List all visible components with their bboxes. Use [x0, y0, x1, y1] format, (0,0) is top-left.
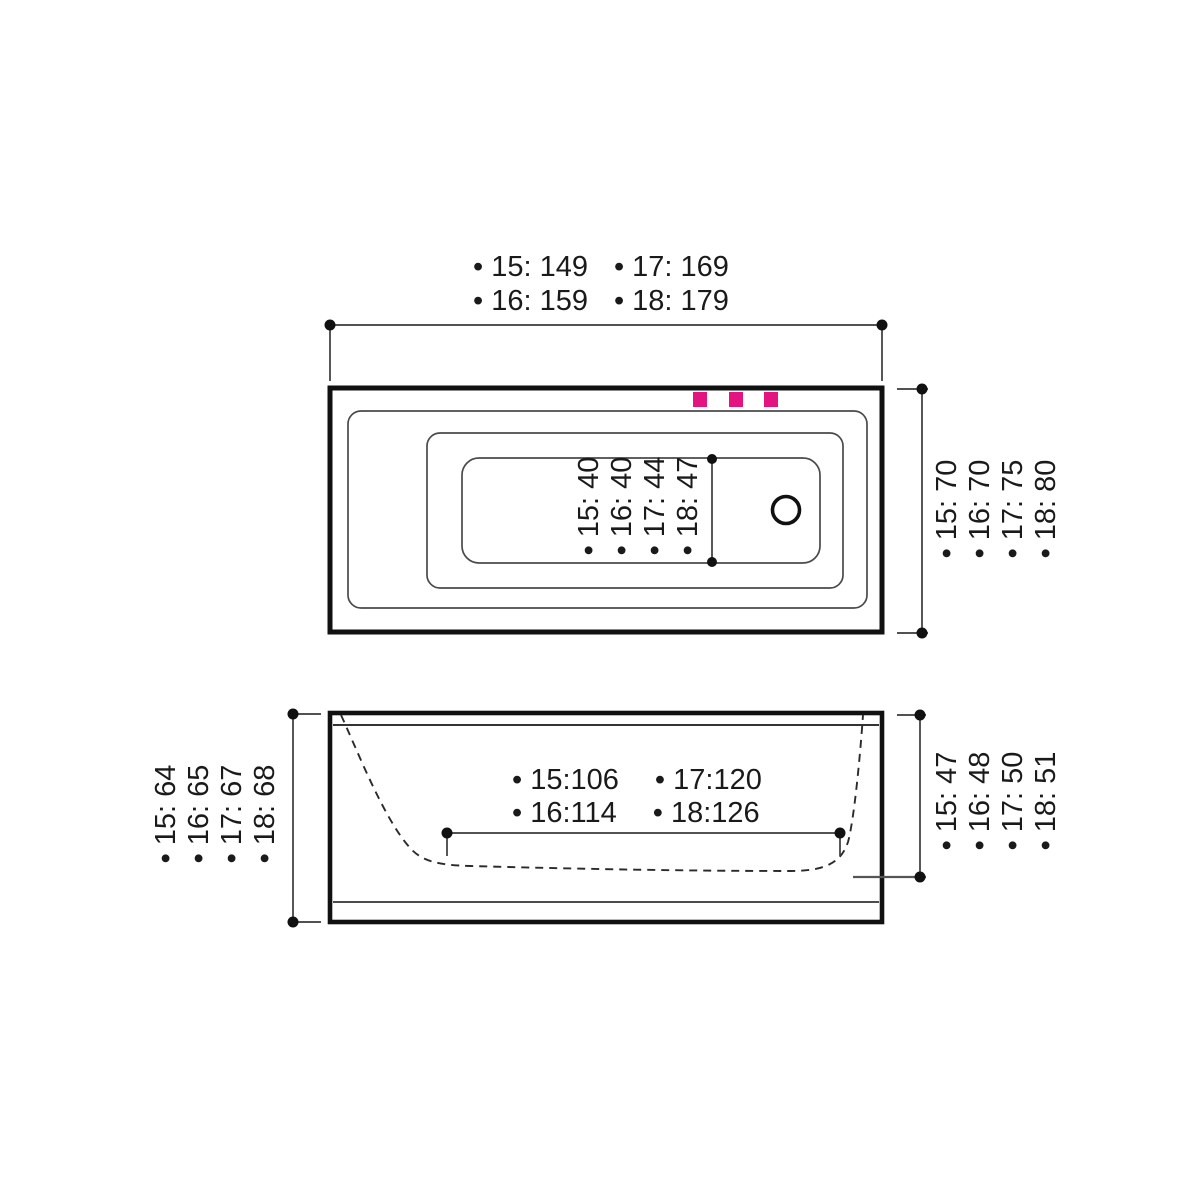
dim-label: • 17: 67	[216, 765, 249, 864]
jet-marker-icon	[729, 392, 743, 407]
dim-dot	[707, 557, 717, 567]
dim-dot	[835, 828, 846, 839]
dim-label: • 15:106	[512, 764, 619, 797]
dim-label: • 17: 50	[997, 752, 1030, 851]
plan-floor-width-labels: • 15: 40 • 16: 40 • 17: 44 • 18: 47	[573, 457, 705, 556]
dim-label: • 18: 179	[614, 284, 729, 318]
dim-label: • 15: 40	[573, 457, 606, 556]
dim-label: • 17: 75	[997, 460, 1030, 559]
dim-label: • 16: 159	[473, 284, 588, 318]
dim-dot	[915, 872, 926, 883]
dim-dot	[917, 384, 928, 395]
side-depth-labels: • 15: 47 • 16: 48 • 17: 50 • 18: 51	[931, 752, 1063, 851]
jet-marker-icon	[693, 392, 707, 407]
dim-label: • 16: 40	[606, 457, 639, 556]
dim-dot	[917, 628, 928, 639]
dim-label: • 17:120	[655, 764, 762, 797]
dim-label: • 16:114	[512, 797, 617, 830]
jet-markers	[693, 392, 778, 407]
bathtub-dimension-drawing: • 15: 149 • 17: 169 • 16: 159 • 18: 179 …	[0, 0, 1200, 1200]
dim-dot	[877, 320, 888, 331]
side-floor-length-labels: • 15:106 • 17:120 • 16:114 • 18:126	[512, 764, 762, 830]
jet-marker-icon	[764, 392, 778, 407]
dim-label: • 15: 149	[473, 250, 588, 284]
dim-label: • 18: 51	[1030, 752, 1063, 851]
dim-label: • 15: 64	[150, 765, 183, 864]
dim-label: • 17: 44	[639, 457, 672, 556]
dim-dot	[325, 320, 336, 331]
side-depth-dimension-line	[853, 715, 926, 877]
dim-label: • 16: 70	[964, 460, 997, 559]
dim-label: • 18:126	[653, 797, 760, 830]
dim-label: • 18: 47	[672, 457, 705, 556]
dim-dot	[288, 709, 299, 720]
dim-label: • 18: 80	[1030, 460, 1063, 559]
dim-label: • 18: 68	[249, 765, 282, 864]
dim-label: • 15: 70	[931, 460, 964, 559]
drain-circle	[773, 497, 800, 524]
dim-dot	[288, 917, 299, 928]
drawing-layer	[0, 0, 1200, 1200]
dim-label: • 16: 65	[183, 765, 216, 864]
plan-length-labels: • 15: 149 • 17: 169 • 16: 159 • 18: 179	[473, 250, 729, 318]
dim-label: • 17: 169	[614, 250, 729, 284]
side-height-dimension-line	[293, 714, 321, 922]
plan-width-dimension-line	[897, 389, 928, 633]
plan-width-labels: • 15: 70 • 16: 70 • 17: 75 • 18: 80	[931, 460, 1063, 559]
dim-dot	[442, 828, 453, 839]
side-height-labels: • 15: 64 • 16: 65 • 17: 67 • 18: 68	[150, 765, 282, 864]
side-floor-length-dimension-line	[447, 833, 840, 856]
plan-length-dimension-line	[330, 325, 882, 381]
dim-label: • 15: 47	[931, 752, 964, 851]
dim-dot	[707, 454, 717, 464]
dim-label: • 16: 48	[964, 752, 997, 851]
dim-dot	[915, 710, 926, 721]
